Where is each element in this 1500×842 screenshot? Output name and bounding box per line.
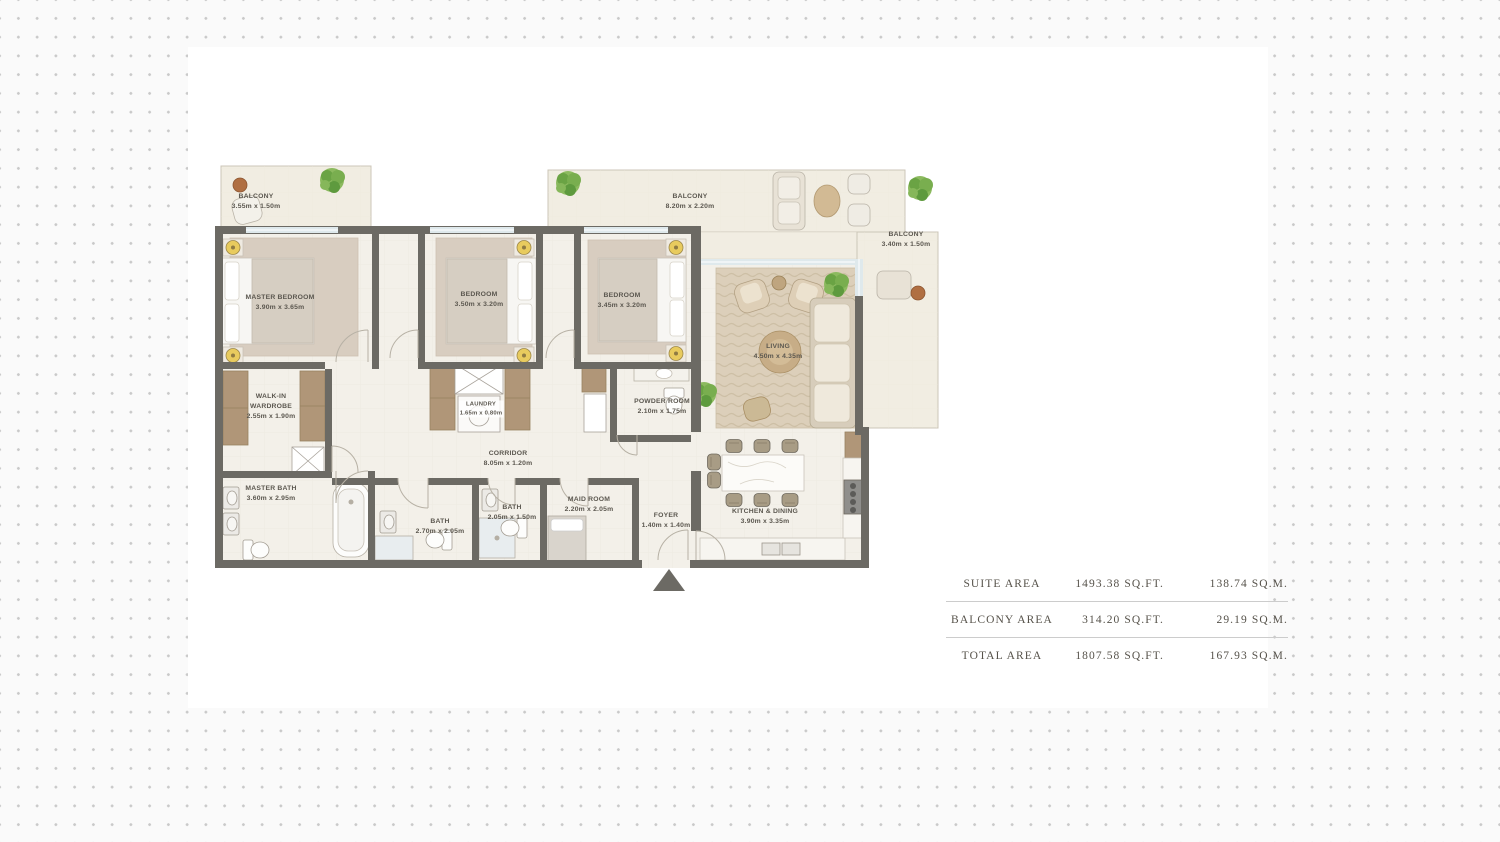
shower-icon [375, 536, 413, 560]
sink-icon [782, 543, 800, 555]
label-bath-2: BATH2.05m x 1.50m [488, 503, 537, 523]
plant-icon [908, 176, 933, 201]
label-bedroom-3: BEDROOM3.45m x 3.20m [598, 291, 647, 311]
table-row: SUITE AREA 1493.38 SQ.FT. 138.74 SQ.M. [946, 566, 1288, 601]
area-sqft: 1807.58 SQ.FT. [1058, 650, 1164, 662]
floor-plan-svg [185, 160, 945, 600]
label-maid-room: MAID ROOM2.20m x 2.05m [565, 495, 614, 515]
area-sqft: 314.20 SQ.FT. [1058, 614, 1164, 626]
lounge-chair-icon [877, 271, 911, 299]
area-table: SUITE AREA 1493.38 SQ.FT. 138.74 SQ.M. B… [946, 566, 1288, 673]
label-laundry: LAUNDRY1.65m x 0.80m [459, 400, 504, 417]
sink-icon [762, 543, 780, 555]
label-balcony-top: BALCONY8.20m x 2.20m [666, 192, 715, 212]
dining-chair-icon [782, 494, 798, 507]
side-table-icon [772, 276, 786, 290]
label-foyer: FOYER1.40m x 1.40m [642, 511, 691, 531]
entrance-arrow-icon [653, 569, 685, 591]
area-sqm: 167.93 SQ.M. [1164, 650, 1288, 662]
balcony-sofa-icon [773, 172, 805, 230]
label-powder-room: POWDER ROOM2.10m x 1.75m [634, 397, 690, 417]
pot-icon [911, 286, 925, 300]
label-balcony-top-left: BALCONY3.55m x 1.50m [232, 192, 281, 212]
sofa-icon [810, 298, 856, 428]
area-label: SUITE AREA [946, 578, 1058, 590]
dining-chair-icon [754, 440, 770, 453]
area-sqm: 138.74 SQ.M. [1164, 578, 1288, 590]
toilet-icon [243, 540, 269, 560]
maid-room-furniture [548, 516, 586, 562]
dining-chair-icon [782, 440, 798, 453]
area-label: BALCONY AREA [946, 614, 1058, 626]
sink-icon [380, 511, 396, 533]
balcony-right [857, 232, 938, 428]
area-sqft: 1493.38 SQ.FT. [1058, 578, 1164, 590]
label-living: LIVING4.50m x 4.35m [754, 342, 803, 362]
dining-chair-icon [726, 440, 742, 453]
sink-icon [223, 487, 239, 509]
label-walk-in-wardrobe: WALK-IN WARDROBE2.55m x 1.90m [240, 392, 302, 422]
area-label: TOTAL AREA [946, 650, 1058, 662]
dining-chair-icon [754, 494, 770, 507]
sink-icon [223, 513, 239, 535]
label-corridor: CORRIDOR8.05m x 1.20m [484, 449, 533, 469]
table-row: TOTAL AREA 1807.58 SQ.FT. 167.93 SQ.M. [946, 637, 1288, 673]
balcony-table-icon [814, 185, 840, 217]
dining-chair-icon [726, 494, 742, 507]
balcony-chair-icon [848, 174, 870, 194]
label-balcony-right: BALCONY3.40m x 1.50m [882, 230, 931, 250]
table-row: BALCONY AREA 314.20 SQ.FT. 29.19 SQ.M. [946, 601, 1288, 637]
pot-icon [233, 178, 247, 192]
bathtub-icon [333, 483, 369, 557]
island [722, 455, 804, 491]
label-master-bedroom: MASTER BEDROOM3.90m x 3.65m [246, 293, 315, 313]
dining-chair-icon [708, 454, 721, 470]
area-sqm: 29.19 SQ.M. [1164, 614, 1288, 626]
label-bedroom-2: BEDROOM3.50m x 3.20m [455, 290, 504, 310]
label-master-bath: MASTER BATH3.60m x 2.95m [245, 484, 296, 504]
label-bath-1: BATH2.70m x 2.05m [416, 517, 465, 537]
label-kitchen-dining: KITCHEN & DINING3.90m x 3.35m [732, 507, 798, 527]
balcony-chair-icon [848, 204, 870, 226]
dining-chair-icon [708, 472, 721, 488]
stove-icon [844, 480, 862, 514]
